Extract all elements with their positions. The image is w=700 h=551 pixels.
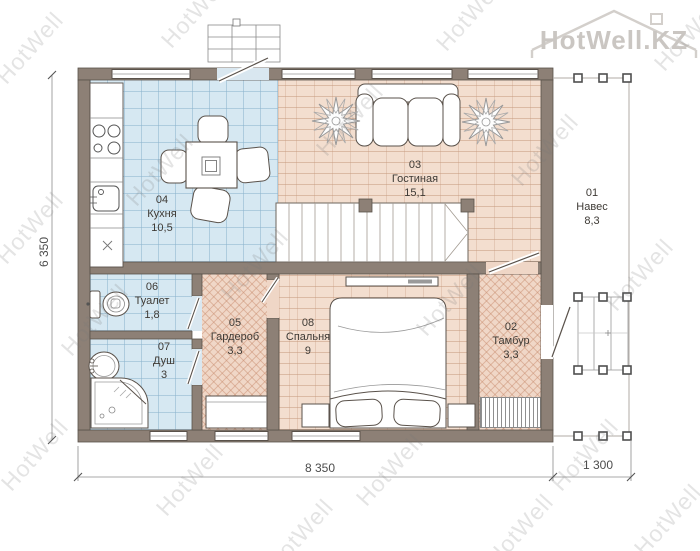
- room-name: Гардероб: [211, 330, 259, 344]
- washbasin: [89, 352, 119, 380]
- dining-table: [186, 142, 237, 188]
- room-number: 02: [492, 320, 529, 334]
- kitchen-sink: [90, 186, 119, 211]
- room-area: 9: [286, 344, 330, 358]
- pillow-right: [393, 399, 440, 427]
- nightstand-left: [302, 404, 329, 427]
- toilet-wc: [86, 291, 129, 318]
- canopy-outline: [553, 78, 629, 436]
- kitchen-counter: [90, 83, 123, 267]
- logo-text: HotWell.KZ: [540, 25, 688, 56]
- chair-bottom: [189, 185, 231, 224]
- nightstand-right: [448, 404, 475, 427]
- dimension-bottom-main: 8 350: [305, 461, 335, 475]
- dimension-left: 6 350: [37, 237, 51, 267]
- room-area: 1,8: [135, 308, 170, 322]
- room-area: 3,3: [211, 344, 259, 358]
- room-area: 10,5: [147, 221, 176, 235]
- room-name: Спальня: [286, 330, 330, 344]
- plant-right: [455, 91, 517, 153]
- corner-shower: [91, 378, 148, 428]
- room-label-garderob: 05 Гардероб 3,3: [211, 316, 259, 358]
- room-number: 01: [576, 186, 607, 200]
- room-label-tualet: 06 Туалет 1,8: [135, 280, 170, 322]
- room-label-naves: 01 Навес 8,3: [576, 186, 607, 228]
- room-name: Кухня: [147, 207, 176, 221]
- room-name: Гостиная: [392, 172, 438, 186]
- chair-top: [198, 116, 228, 144]
- canopy-posts: [574, 74, 631, 440]
- dining-set: [161, 116, 271, 224]
- room-area: 3: [153, 368, 175, 382]
- room-number: 03: [392, 158, 438, 172]
- room-number: 05: [211, 316, 259, 330]
- pillow-left: [335, 399, 382, 427]
- room-number: 04: [147, 193, 176, 207]
- room-area: 3,3: [492, 348, 529, 362]
- room-number: 08: [286, 316, 330, 330]
- room-name: Навес: [576, 200, 607, 214]
- floor-plan-canvas: HotWellHotWellHotWellHotWellHotWellHotWe…: [0, 0, 700, 551]
- chair-right: [234, 146, 270, 183]
- sofa: [356, 84, 460, 146]
- room-name: Туалет: [135, 294, 170, 308]
- room-label-gostinaya: 03 Гостиная 15,1: [392, 158, 438, 200]
- room-name: Душ: [153, 354, 175, 368]
- room-label-dush: 07 Душ 3: [153, 340, 175, 382]
- room-label-tambur: 02 Тамбур 3,3: [492, 320, 529, 362]
- room-area: 8,3: [576, 214, 607, 228]
- room-number: 07: [153, 340, 175, 354]
- entry-steps-top: [208, 19, 280, 62]
- chair-left: [161, 150, 188, 183]
- wardrobe-closet: [206, 396, 267, 428]
- room-area: 15,1: [392, 186, 438, 200]
- room-label-kuhnya: 04 Кухня 10,5: [147, 193, 176, 235]
- dimension-bottom-side: 1 300: [583, 458, 613, 472]
- room-number: 06: [135, 280, 170, 294]
- room-name: Тамбур: [492, 334, 529, 348]
- entry-porch-right: [578, 297, 628, 370]
- staircase: [276, 199, 474, 262]
- room-label-spalnya: 08 Спальня 9: [286, 316, 330, 358]
